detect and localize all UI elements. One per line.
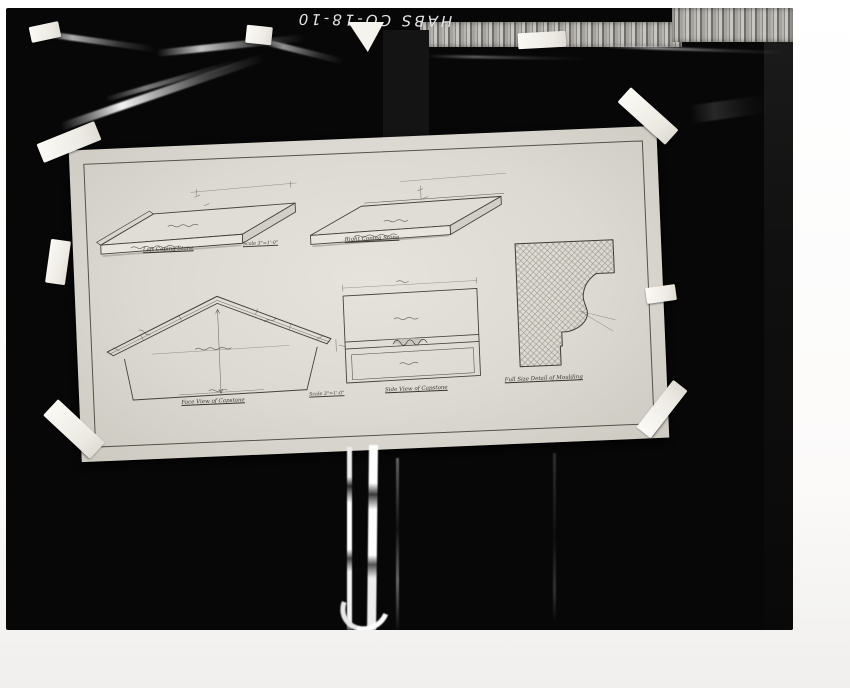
stand-clamp-highlight	[333, 577, 398, 630]
archival-photograph-page: HABS CO-18-10	[0, 0, 850, 688]
tarp-highlight	[600, 45, 785, 54]
tarp-highlight	[689, 95, 771, 124]
measured-drawings	[69, 126, 670, 462]
tape-piece-top-center	[518, 31, 567, 49]
tape-piece-backdrop	[245, 25, 273, 46]
stand-pole-highlight	[396, 458, 399, 630]
tarp-highlight	[104, 59, 240, 102]
moulding-profile-drawing	[515, 240, 618, 367]
photo-black-field: HABS CO-18-10	[6, 8, 793, 630]
easel-post	[383, 30, 429, 146]
face-view-capstone-drawing	[105, 292, 333, 401]
tape-piece-backdrop	[29, 21, 62, 43]
tape-piece-backdrop	[348, 22, 384, 52]
right-coping-stone-drawing	[308, 173, 509, 246]
side-view-capstone-drawing	[334, 277, 481, 383]
tarp-highlight	[426, 55, 586, 61]
tape-piece-sheet-right-middle	[645, 284, 677, 304]
tape-piece-sheet-left-middle	[45, 239, 71, 285]
drawing-sheet: Left Coping Stone Scale 3"=1'-0" Right C…	[69, 126, 670, 462]
stand-pole-highlight	[553, 453, 556, 623]
wood-plank-texture	[672, 8, 793, 42]
